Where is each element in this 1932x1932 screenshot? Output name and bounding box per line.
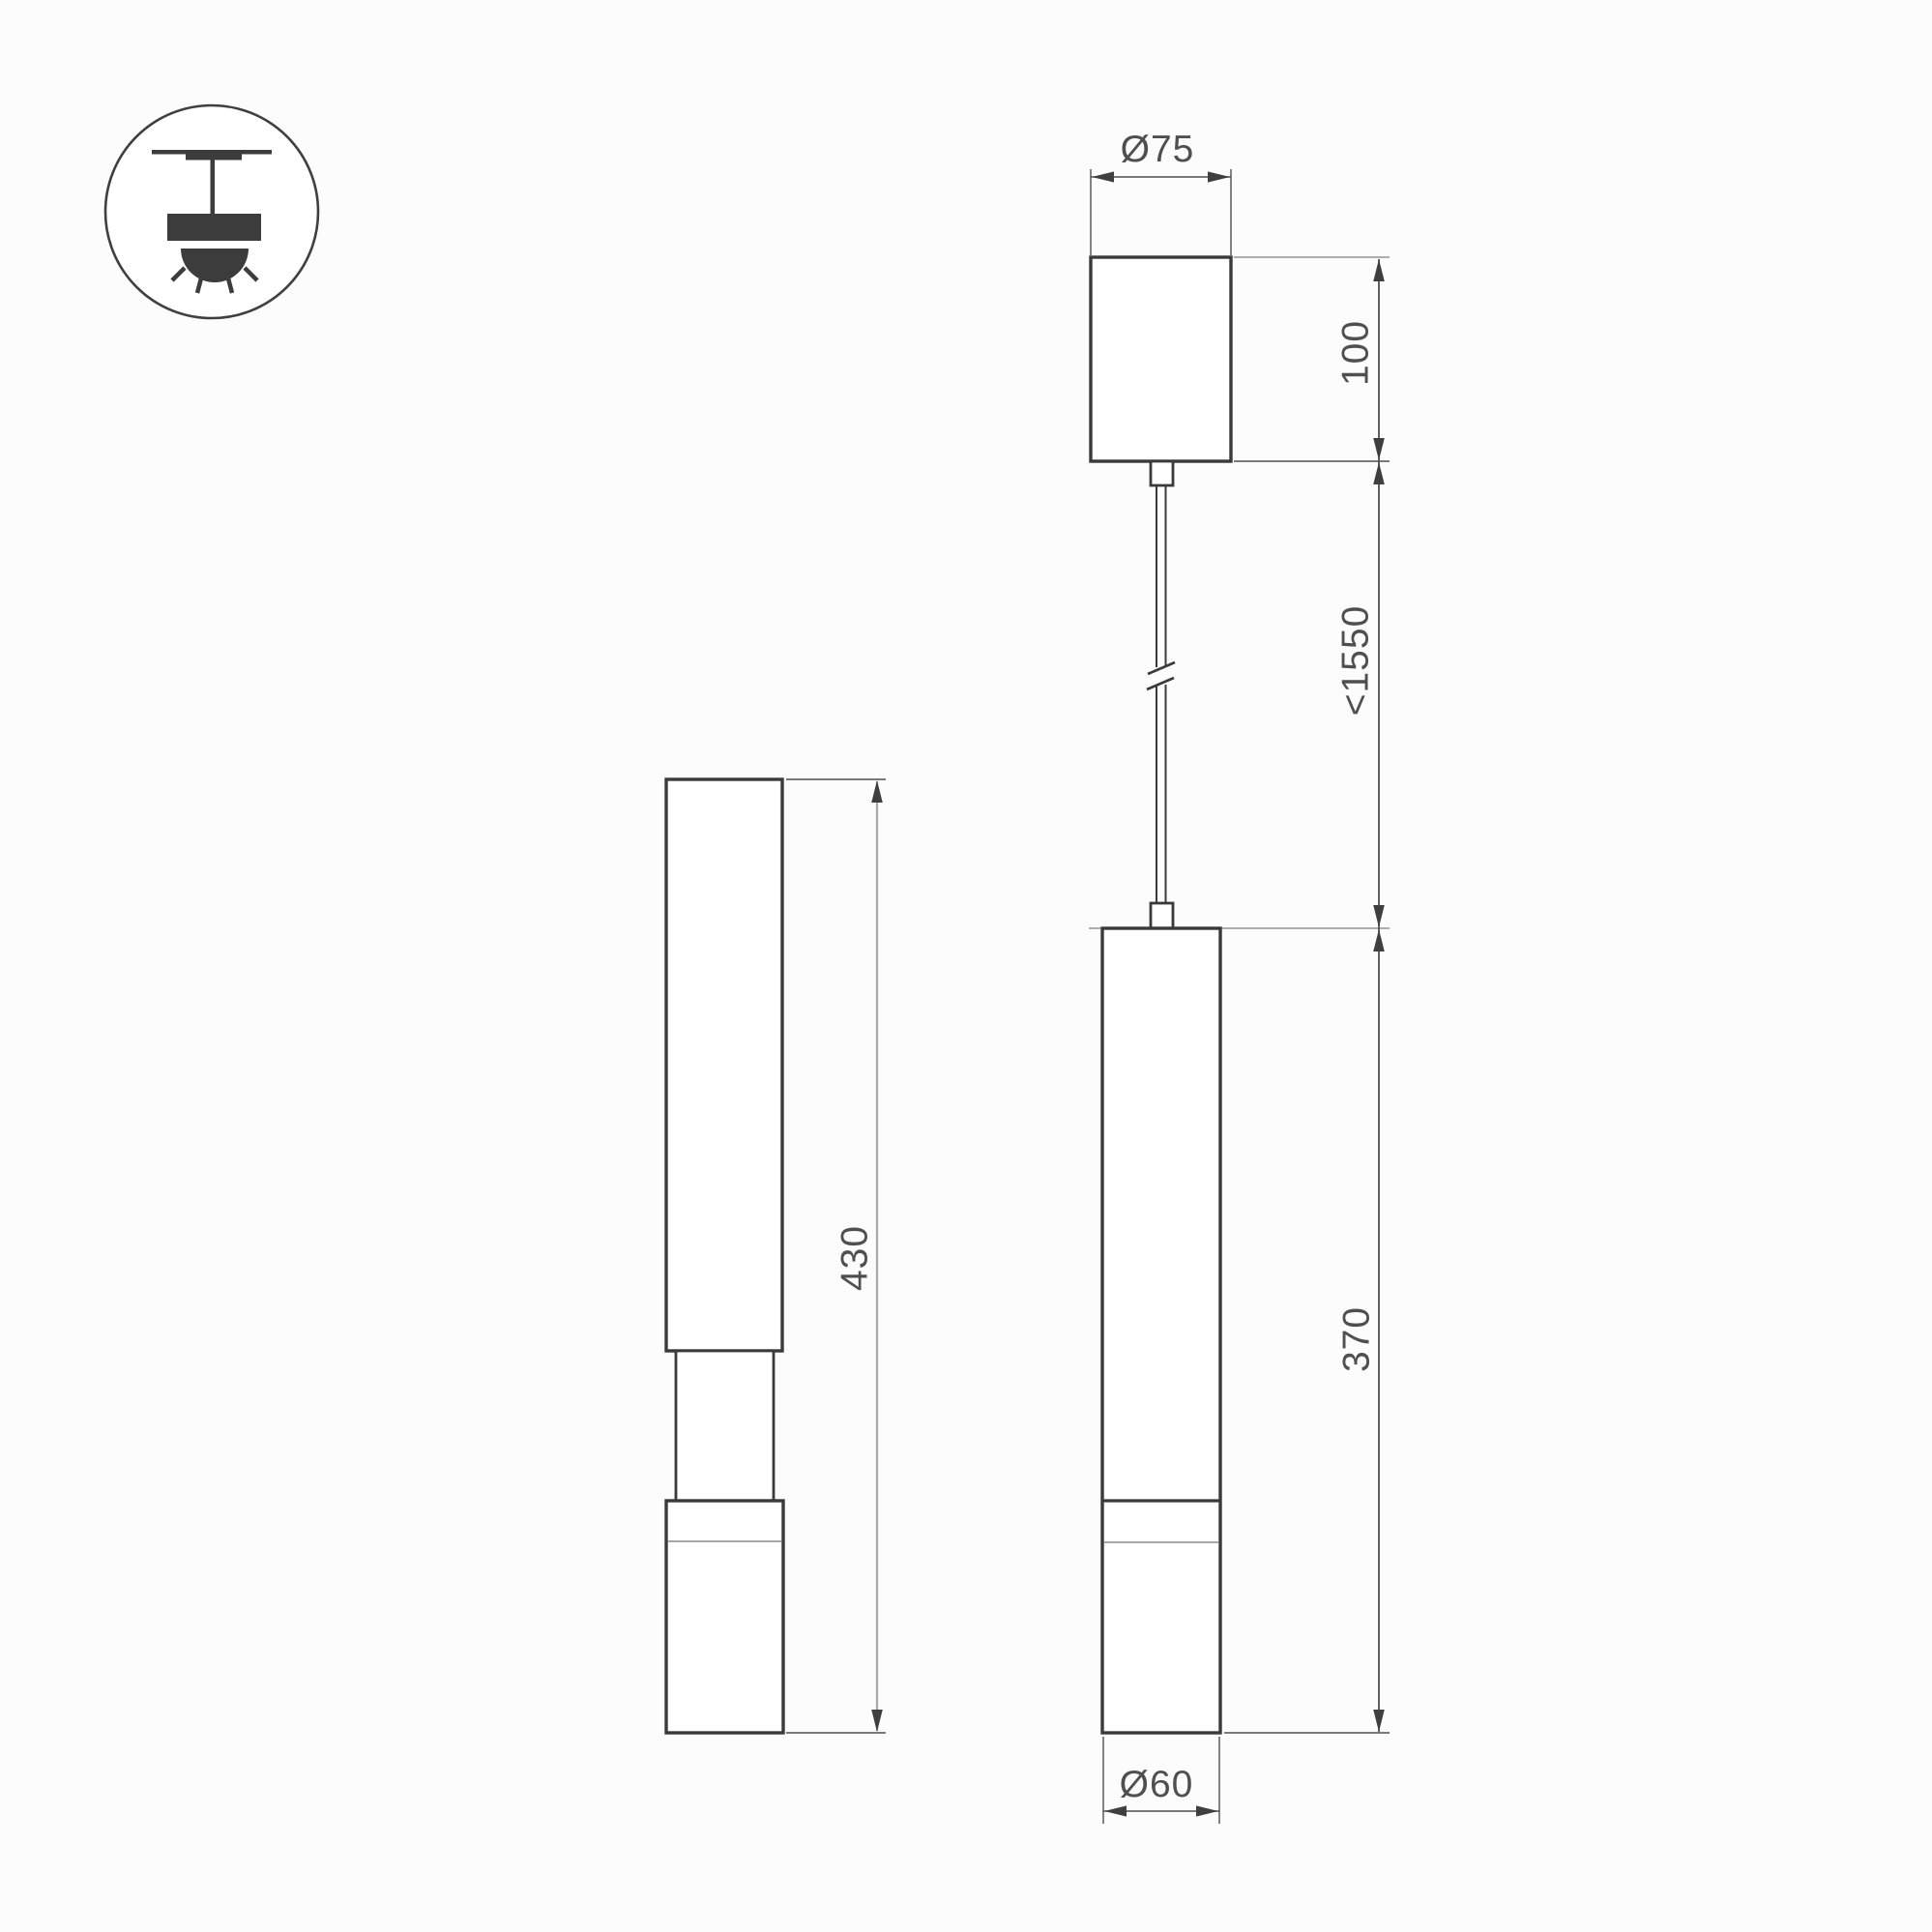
cable-break-icon <box>1147 678 1174 689</box>
lamp-body-outline <box>1102 928 1220 1733</box>
suspension-cable <box>1147 485 1175 905</box>
arrowhead-up <box>871 780 883 803</box>
dimension-label-body-height: 370 <box>1336 1306 1378 1372</box>
dimension-label-canopy-height: 100 <box>1335 320 1377 386</box>
arrowhead-up <box>1373 259 1385 281</box>
dimension-label-body-diameter: Ø60 <box>1120 1764 1194 1805</box>
pendant-stem <box>211 158 216 216</box>
lamp-housing-silhouette <box>167 214 261 241</box>
side-lower-section-outline <box>666 1501 783 1733</box>
arrowhead-right <box>1208 171 1230 182</box>
canopy-cable-gland <box>1151 461 1173 485</box>
arrowhead-left <box>1092 171 1114 182</box>
arrowhead-up <box>1373 462 1385 484</box>
arrowhead-left <box>1104 1805 1127 1816</box>
ceiling-pendant-icon <box>105 105 318 318</box>
arrowhead-down <box>871 1710 883 1732</box>
dimension-label-canopy-diameter: Ø75 <box>1121 129 1195 170</box>
pendant-lamp-dimension-drawing: 430 Ø75 <box>0 0 1932 1932</box>
technical-drawing-page: 430 Ø75 <box>0 0 1932 1932</box>
ceiling-line <box>152 150 272 155</box>
canopy-outline <box>1091 257 1231 461</box>
cable-break-icon <box>1148 662 1175 674</box>
side-view: 430 <box>666 779 886 1733</box>
dimension-label-side-height: 430 <box>834 1225 876 1291</box>
side-middle-section-outline <box>676 1351 774 1501</box>
arrowhead-down <box>1373 438 1385 460</box>
arrowhead-up <box>1373 929 1385 951</box>
arrowhead-right <box>1196 1805 1218 1816</box>
dimension-label-suspension: <1550 <box>1335 605 1377 717</box>
arrowhead-down <box>1373 1710 1385 1732</box>
side-upper-body-outline <box>666 779 782 1351</box>
body-cable-gland <box>1151 903 1173 928</box>
front-view: Ø75 <box>1089 129 1390 1824</box>
arrowhead-down <box>1373 905 1385 927</box>
